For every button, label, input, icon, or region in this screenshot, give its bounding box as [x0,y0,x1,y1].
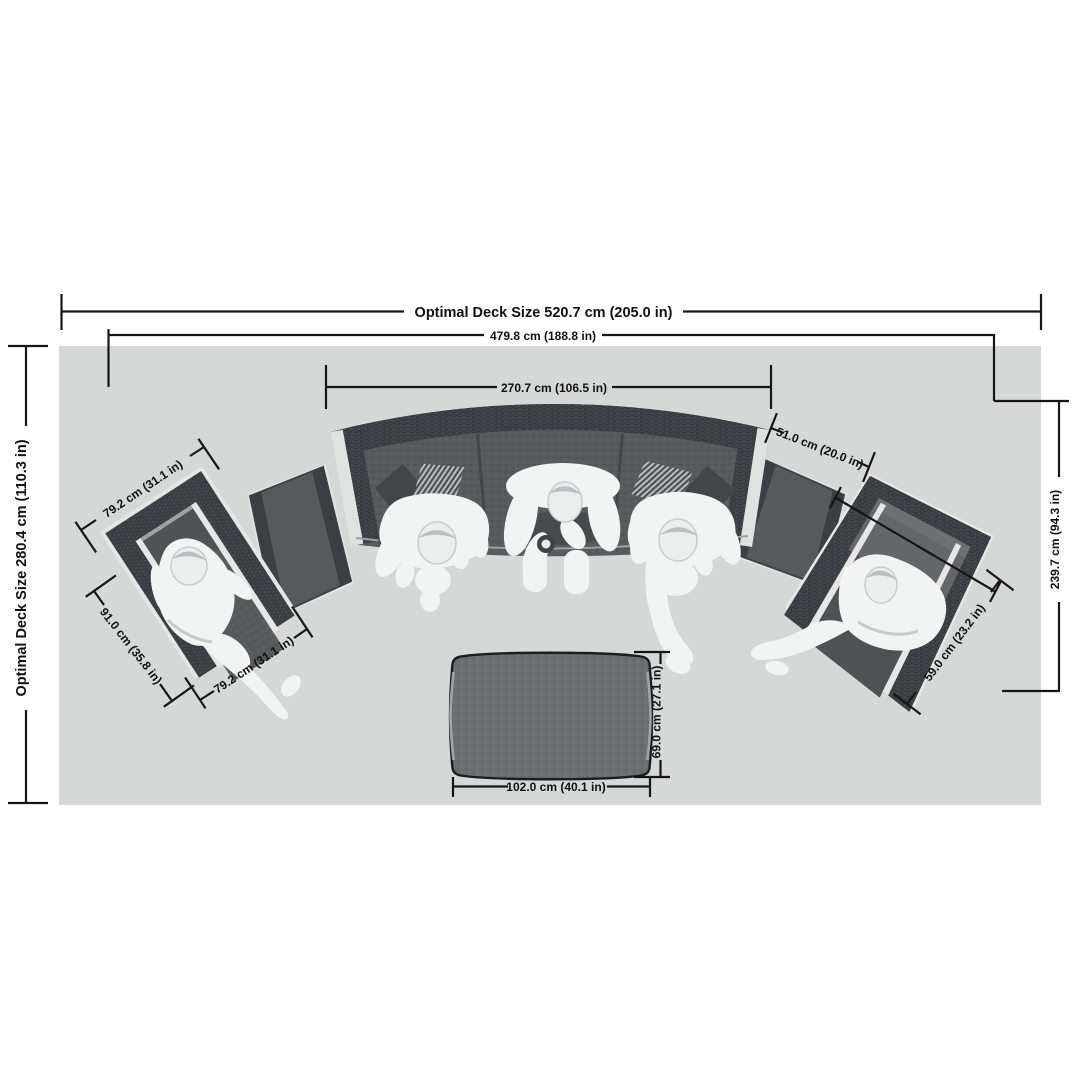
svg-text:239.7 cm (94.3 in): 239.7 cm (94.3 in) [1048,490,1062,589]
svg-text:479.8 cm (188.8 in): 479.8 cm (188.8 in) [490,329,596,343]
svg-text:102.0 cm (40.1 in): 102.0 cm (40.1 in) [506,780,605,794]
svg-text:69.0 cm (27.1 in): 69.0 cm (27.1 in) [650,666,664,759]
svg-text:270.7 cm (106.5 in): 270.7 cm (106.5 in) [501,381,607,395]
svg-text:Optimal Deck Size 280.4 cm (11: Optimal Deck Size 280.4 cm (110.3 in) [14,439,30,696]
svg-text:Optimal Deck Size 520.7 cm (20: Optimal Deck Size 520.7 cm (205.0 in) [415,305,673,321]
